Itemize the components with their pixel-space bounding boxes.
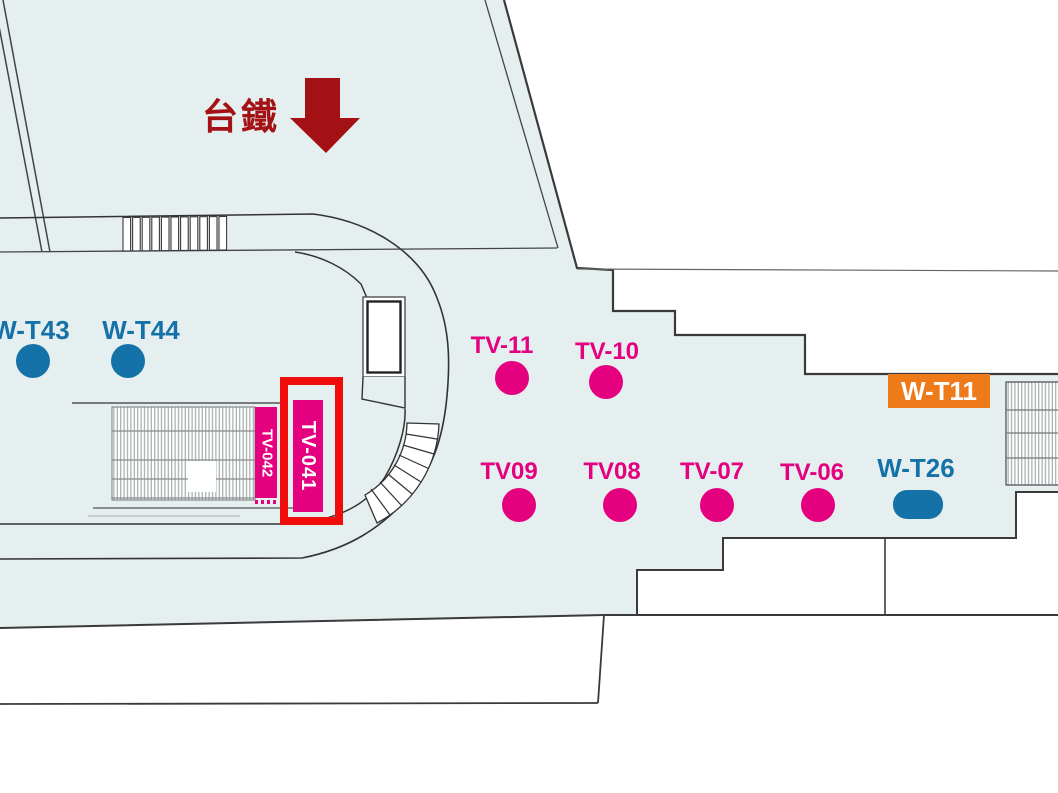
marker-dot-w-t44[interactable] (111, 344, 145, 378)
marker-dot-tv-07[interactable] (700, 488, 734, 522)
marker-box-w-t11[interactable]: W-T11 (888, 374, 990, 408)
panel-dash-marks (255, 500, 277, 504)
marker-dot-w-t43[interactable] (16, 344, 50, 378)
marker-dot-tv-06[interactable] (801, 488, 835, 522)
marker-panel-tv-042[interactable]: TV-042 (255, 407, 277, 498)
station-floorplan: 台鐵 W-T43 W-T44 TV-11 TV-10 TV09 TV08 TV-… (0, 0, 1058, 793)
marker-label-w-t44: W-T44 (71, 317, 211, 344)
marker-dot-tv08[interactable] (603, 488, 637, 522)
taitie-area-label: 台鐵 (202, 88, 280, 140)
stairs-top-corridor (123, 217, 227, 252)
marker-panel-tv-042-label: TV-042 (255, 407, 277, 498)
marker-dot-tv-11[interactable] (495, 361, 529, 395)
stairs-block-right (1006, 382, 1058, 485)
marker-label-tv-10: TV-10 (537, 339, 677, 364)
structural-line-upper (577, 269, 1058, 271)
marker-dot-tv09[interactable] (502, 488, 536, 522)
marker-label-w-t26: W-T26 (846, 455, 986, 482)
highlight-frame-tv-041 (280, 377, 343, 525)
elevator-box (362, 297, 405, 408)
marker-pill-w-t26[interactable] (893, 490, 943, 519)
marker-dot-tv-10[interactable] (589, 365, 623, 399)
